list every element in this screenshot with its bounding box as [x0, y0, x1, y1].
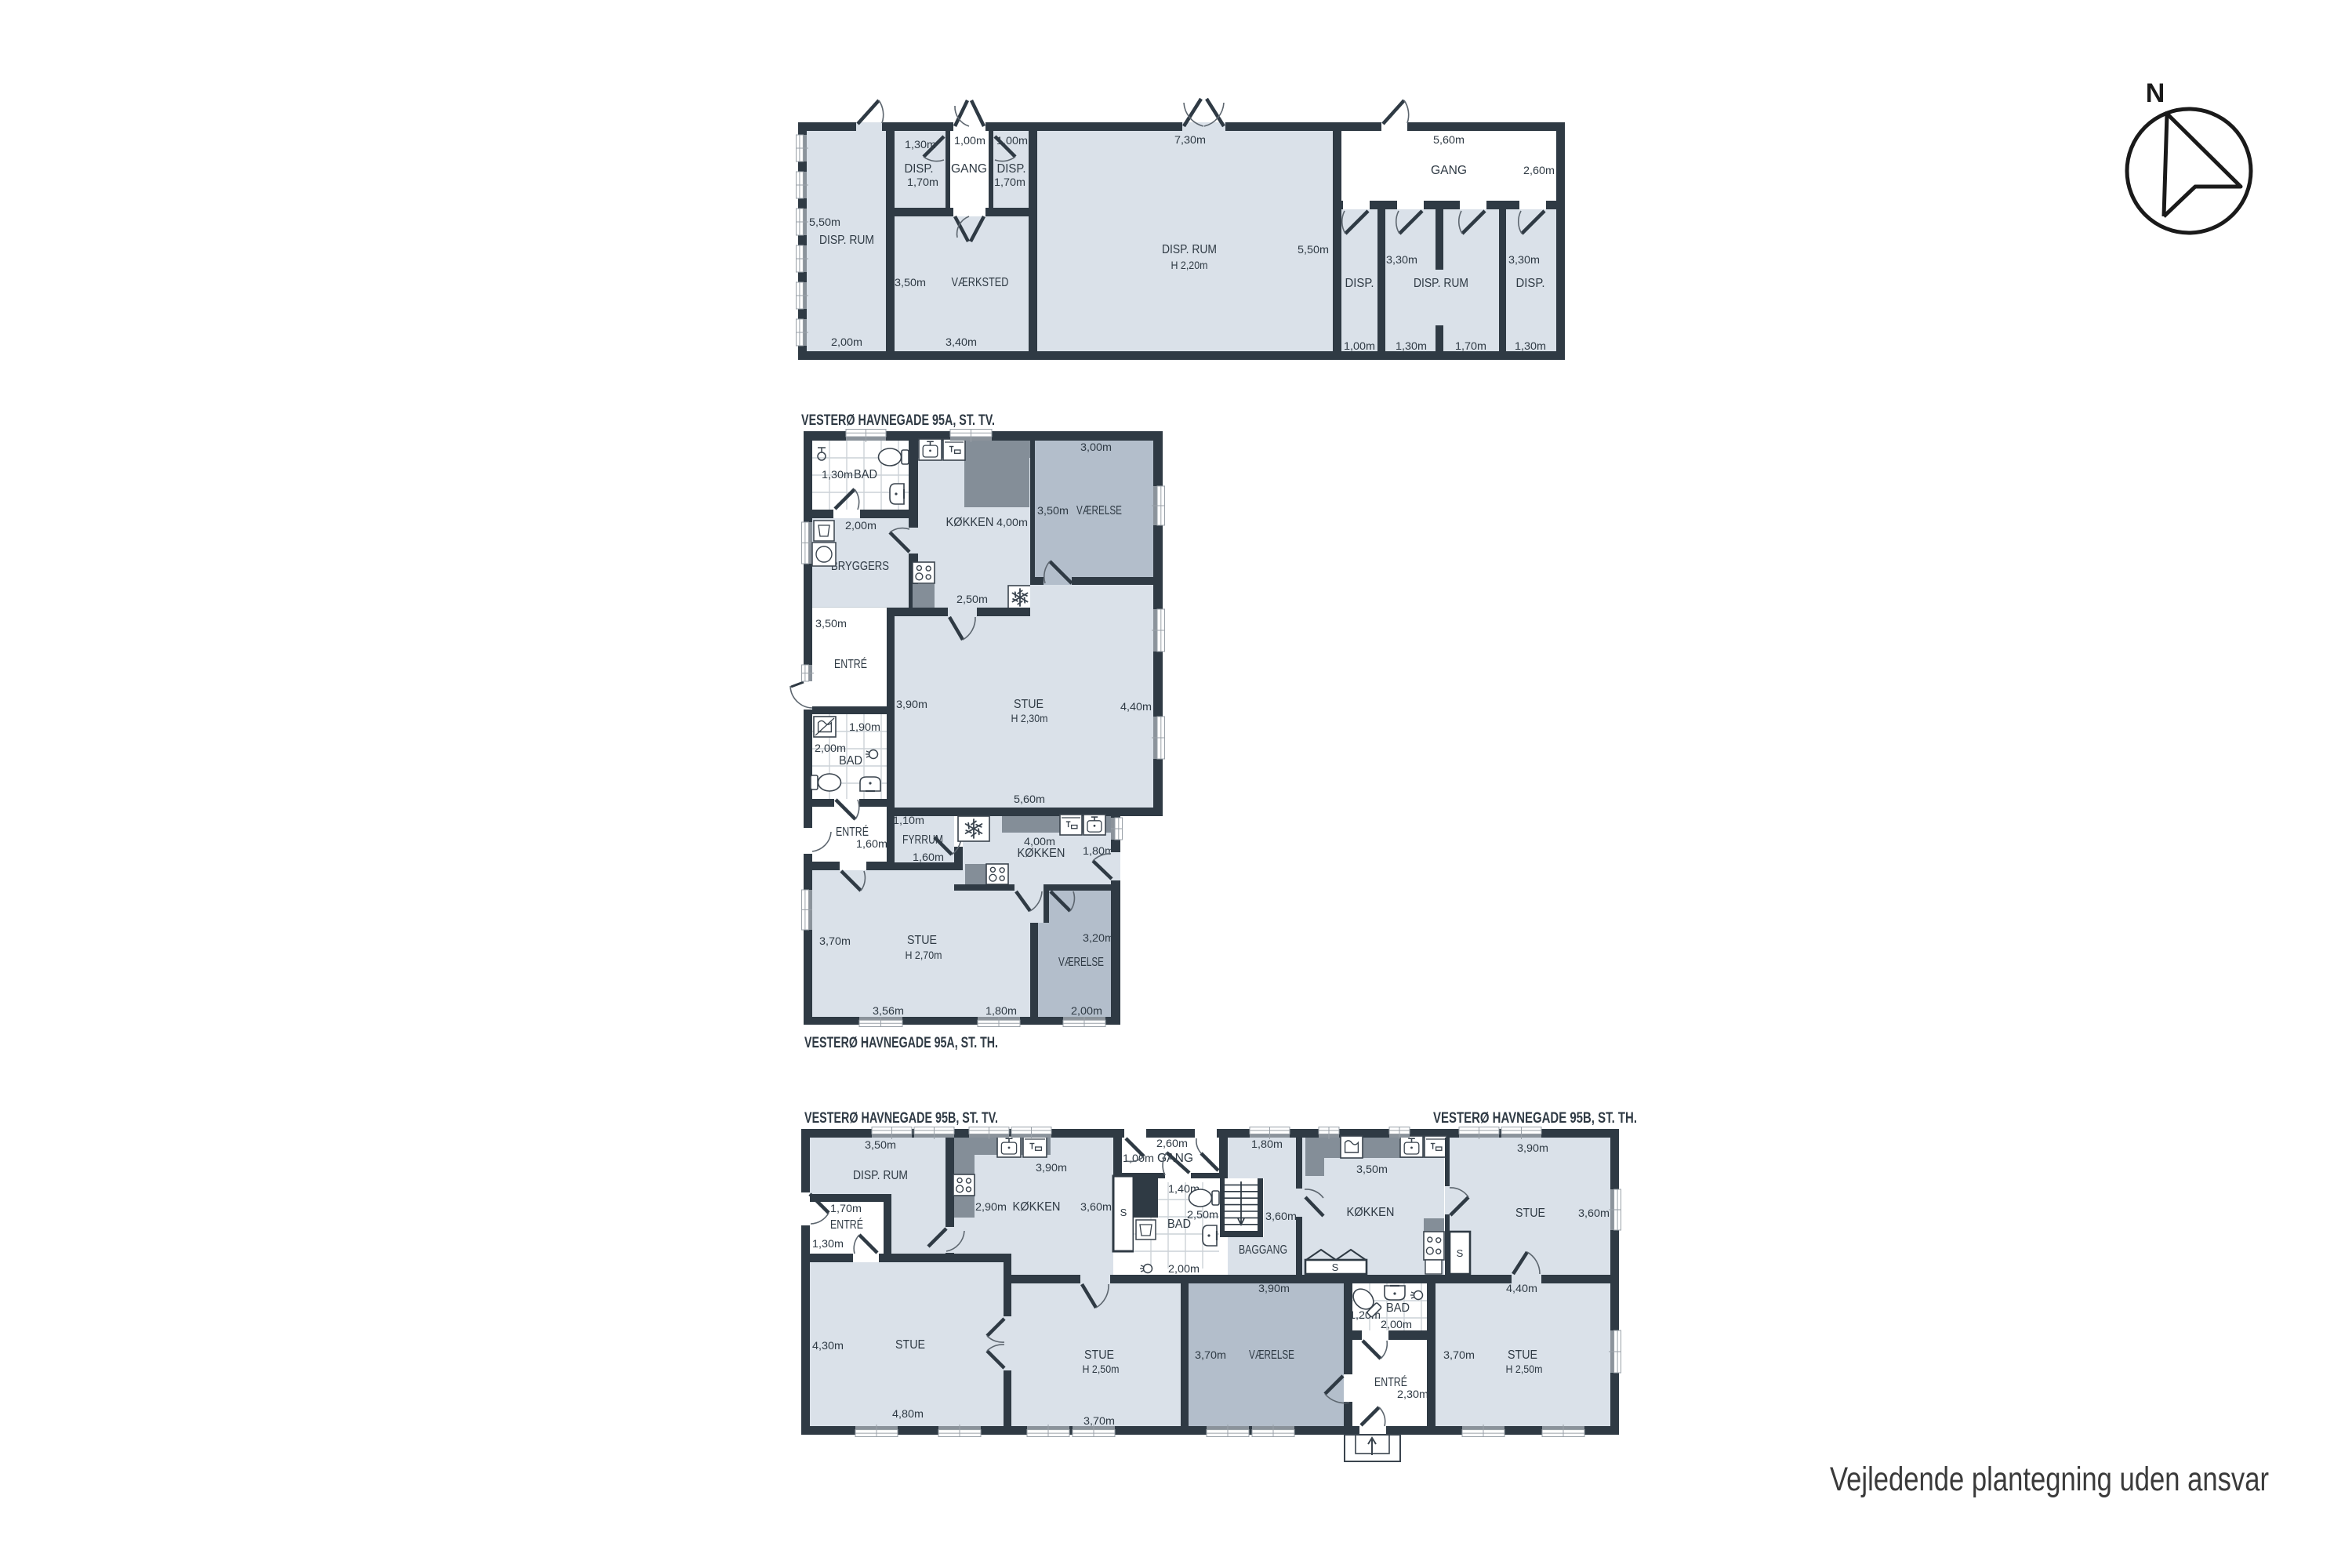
svg-text:3,50m: 3,50m: [1037, 504, 1069, 517]
svg-text:1,30m: 1,30m: [1515, 339, 1546, 352]
svg-text:2,50m: 2,50m: [1187, 1208, 1218, 1221]
svg-text:GANG: GANG: [951, 162, 987, 176]
svg-text:DISP. RUM: DISP. RUM: [853, 1169, 908, 1182]
svg-text:DISP.: DISP.: [1345, 277, 1374, 290]
svg-text:VÆRELSE: VÆRELSE: [1076, 504, 1122, 517]
svg-text:KØKKEN: KØKKEN: [1347, 1206, 1395, 1219]
svg-text:DISP.: DISP.: [905, 162, 934, 176]
svg-text:DISP.: DISP.: [1516, 277, 1545, 290]
svg-text:1,00m: 1,00m: [954, 134, 985, 147]
svg-text:2,00m: 2,00m: [831, 336, 862, 348]
svg-text:3,50m: 3,50m: [815, 617, 847, 630]
svg-text:4,00m: 4,00m: [996, 516, 1028, 528]
svg-text:1,70m: 1,70m: [830, 1202, 862, 1214]
svg-text:STUE: STUE: [895, 1338, 925, 1352]
svg-text:2,90m: 2,90m: [975, 1200, 1007, 1213]
svg-text:3,70m: 3,70m: [1083, 1414, 1115, 1427]
svg-text:7,30m: 7,30m: [1174, 133, 1206, 146]
svg-text:ENTRÉ: ENTRÉ: [834, 658, 867, 671]
svg-text:STUE: STUE: [907, 934, 937, 947]
svg-text:1,80m: 1,80m: [1251, 1138, 1283, 1150]
svg-text:DISP. RUM: DISP. RUM: [1414, 277, 1468, 290]
svg-text:1,80m: 1,80m: [1083, 844, 1114, 857]
svg-text:DISP. RUM: DISP. RUM: [819, 234, 874, 247]
svg-text:2,00m: 2,00m: [1168, 1262, 1200, 1275]
svg-text:1,30m: 1,30m: [812, 1237, 844, 1250]
svg-text:5,50m: 5,50m: [809, 216, 840, 228]
svg-text:1,30m: 1,30m: [1396, 339, 1427, 352]
svg-text:BAD: BAD: [1167, 1218, 1191, 1231]
svg-text:2,00m: 2,00m: [815, 742, 846, 754]
svg-text:GANG: GANG: [1431, 164, 1467, 177]
svg-text:4,00m: 4,00m: [1024, 835, 1055, 848]
svg-text:STUE: STUE: [1014, 698, 1044, 711]
svg-text:S: S: [1332, 1261, 1339, 1273]
svg-text:KØKKEN: KØKKEN: [946, 516, 994, 529]
svg-text:3,70m: 3,70m: [1443, 1348, 1475, 1361]
svg-text:2,50m: 2,50m: [956, 593, 988, 605]
svg-text:H 2,30m: H 2,30m: [1011, 712, 1048, 724]
svg-text:3,50m: 3,50m: [865, 1138, 896, 1151]
svg-text:3,90m: 3,90m: [1258, 1282, 1290, 1294]
svg-text:3,60m: 3,60m: [1265, 1210, 1297, 1222]
svg-text:1,00m: 1,00m: [1123, 1152, 1154, 1164]
svg-text:H 2,50m: H 2,50m: [1083, 1363, 1120, 1375]
svg-text:3,00m: 3,00m: [1080, 441, 1112, 453]
svg-text:5,50m: 5,50m: [1298, 243, 1329, 256]
svg-text:S: S: [1120, 1207, 1127, 1218]
svg-text:3,90m: 3,90m: [896, 698, 927, 710]
svg-text:VESTERØ HAVNEGADE 95B, ST. TV.: VESTERØ HAVNEGADE 95B, ST. TV.: [804, 1110, 998, 1127]
svg-text:BAD: BAD: [1386, 1301, 1410, 1315]
svg-text:2,00m: 2,00m: [1381, 1318, 1412, 1330]
svg-text:BAGGANG: BAGGANG: [1239, 1243, 1287, 1257]
svg-text:3,20m: 3,20m: [1083, 931, 1114, 944]
svg-text:BAD: BAD: [854, 468, 877, 481]
svg-text:H 2,20m: H 2,20m: [1171, 259, 1208, 271]
svg-text:S: S: [1457, 1247, 1464, 1259]
svg-text:3,40m: 3,40m: [946, 336, 977, 348]
svg-text:3,90m: 3,90m: [1517, 1142, 1548, 1154]
svg-text:DISP. RUM: DISP. RUM: [1162, 243, 1217, 256]
svg-text:BRYGGERS: BRYGGERS: [831, 560, 889, 573]
svg-text:1,00m: 1,00m: [1344, 339, 1375, 352]
svg-text:3,30m: 3,30m: [1508, 253, 1540, 266]
svg-text:VÆRELSE: VÆRELSE: [1058, 956, 1104, 969]
svg-text:VESTERØ HAVNEGADE 95A, ST. TH.: VESTERØ HAVNEGADE 95A, ST. TH.: [804, 1035, 998, 1051]
svg-text:ENTRÉ: ENTRÉ: [830, 1218, 863, 1232]
svg-text:2,60m: 2,60m: [1156, 1137, 1188, 1149]
svg-text:1,60m: 1,60m: [856, 837, 887, 850]
svg-text:1,30m: 1,30m: [822, 468, 853, 481]
svg-text:5,60m: 5,60m: [1433, 133, 1465, 146]
svg-text:VESTERØ HAVNEGADE 95A, ST. TV.: VESTERØ HAVNEGADE 95A, ST. TV.: [801, 412, 995, 429]
svg-text:1,60m: 1,60m: [913, 851, 944, 863]
svg-text:DISP.: DISP.: [997, 162, 1026, 176]
svg-text:VÆRKSTED: VÆRKSTED: [952, 276, 1009, 289]
svg-text:3,50m: 3,50m: [895, 276, 926, 289]
svg-text:1,70m: 1,70m: [1455, 339, 1486, 352]
svg-text:2,30m: 2,30m: [1397, 1388, 1428, 1400]
svg-text:3,60m: 3,60m: [1578, 1207, 1610, 1219]
svg-text:3,60m: 3,60m: [1080, 1200, 1112, 1213]
svg-text:3,50m: 3,50m: [1356, 1163, 1388, 1175]
svg-text:BAD: BAD: [839, 754, 862, 768]
svg-text:VÆRELSE: VÆRELSE: [1249, 1348, 1294, 1362]
svg-text:H 2,70m: H 2,70m: [906, 949, 942, 961]
svg-text:3,70m: 3,70m: [1195, 1348, 1226, 1361]
svg-text:STUE: STUE: [1515, 1207, 1545, 1220]
svg-text:4,80m: 4,80m: [892, 1407, 924, 1420]
svg-text:3,70m: 3,70m: [819, 935, 851, 947]
svg-text:3,30m: 3,30m: [1386, 253, 1417, 266]
svg-text:3,56m: 3,56m: [873, 1004, 904, 1017]
svg-text:1,80m: 1,80m: [985, 1004, 1017, 1017]
svg-text:KØKKEN: KØKKEN: [1013, 1200, 1061, 1214]
svg-text:Vejledende plantegning uden an: Vejledende plantegning uden ansvar: [1830, 1461, 2269, 1498]
svg-text:1,10m: 1,10m: [893, 814, 924, 826]
svg-text:2,00m: 2,00m: [845, 519, 877, 532]
svg-text:1,90m: 1,90m: [849, 720, 880, 733]
svg-text:KØKKEN: KØKKEN: [1018, 847, 1065, 860]
svg-text:H 2,50m: H 2,50m: [1506, 1363, 1543, 1375]
svg-text:STUE: STUE: [1508, 1348, 1537, 1362]
svg-text:2,60m: 2,60m: [1523, 164, 1555, 176]
svg-text:N: N: [2146, 78, 2165, 108]
svg-text:1,70m: 1,70m: [994, 176, 1025, 188]
svg-text:1,70m: 1,70m: [907, 176, 938, 188]
svg-text:2,00m: 2,00m: [1071, 1004, 1102, 1017]
svg-text:4,30m: 4,30m: [812, 1339, 844, 1352]
svg-text:STUE: STUE: [1084, 1348, 1114, 1362]
svg-text:3,90m: 3,90m: [1036, 1161, 1067, 1174]
svg-text:5,60m: 5,60m: [1014, 793, 1045, 805]
svg-text:4,40m: 4,40m: [1120, 700, 1152, 713]
svg-text:4,40m: 4,40m: [1506, 1282, 1537, 1294]
svg-text:VESTERØ HAVNEGADE 95B, ST. TH.: VESTERØ HAVNEGADE 95B, ST. TH.: [1433, 1110, 1637, 1127]
